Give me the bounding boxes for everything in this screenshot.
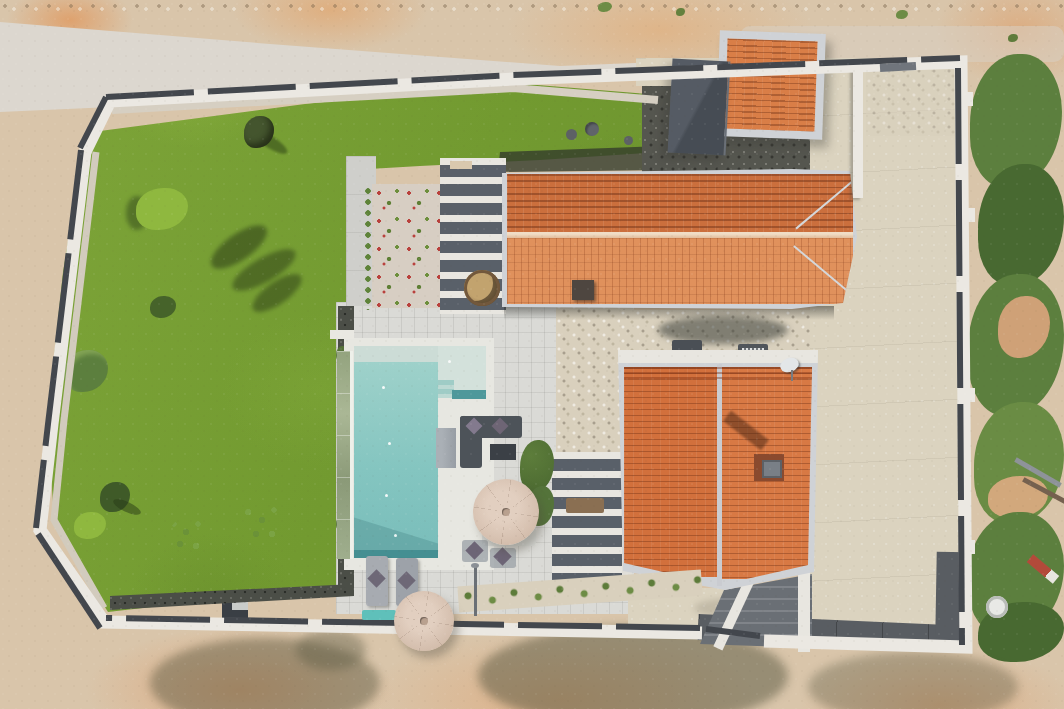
outdoor-shower-pole (474, 566, 477, 616)
aerial-photo-stage (0, 0, 1064, 709)
parasol-hub (502, 508, 510, 516)
parasol-hub (420, 617, 428, 625)
wall-pillar-tab (964, 92, 973, 106)
pedestrian-gate-top-wall (880, 66, 916, 68)
outdoor-shower-head (471, 563, 479, 568)
wall-pillar-tab (966, 208, 975, 222)
parasol-dining (473, 479, 539, 545)
wall-pillar-tab (966, 540, 975, 554)
wall-cap-south (706, 629, 760, 636)
outdoor-kitchen-cabinet (436, 428, 456, 468)
wall-cap-east (958, 68, 962, 645)
wall-pillar-tab (966, 388, 975, 402)
plot-wall-north-east (85, 62, 966, 647)
teal-bench (362, 610, 396, 620)
coffee-table (490, 444, 516, 460)
parasol-gate (394, 591, 454, 651)
